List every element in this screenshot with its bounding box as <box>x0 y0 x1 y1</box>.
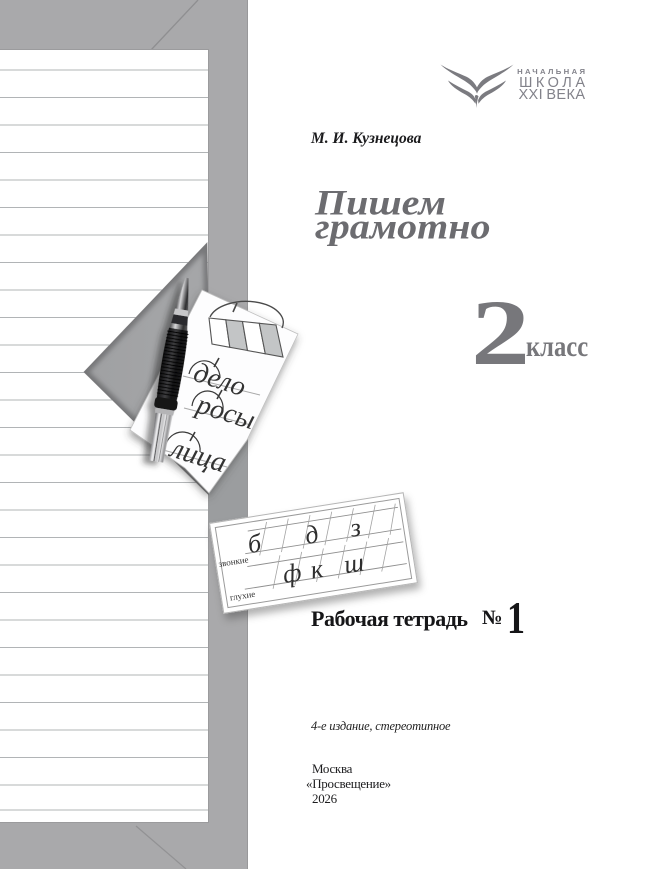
svg-text:к: к <box>308 554 325 585</box>
svg-text:звонкие: звонкие <box>218 554 249 569</box>
svg-text:з: з <box>347 513 363 543</box>
svg-text:ш: ш <box>342 547 366 579</box>
svg-text:глухие: глухие <box>229 589 256 603</box>
svg-text:б: б <box>246 528 264 559</box>
svg-text:д: д <box>303 519 321 550</box>
svg-text:ф: ф <box>281 557 304 589</box>
